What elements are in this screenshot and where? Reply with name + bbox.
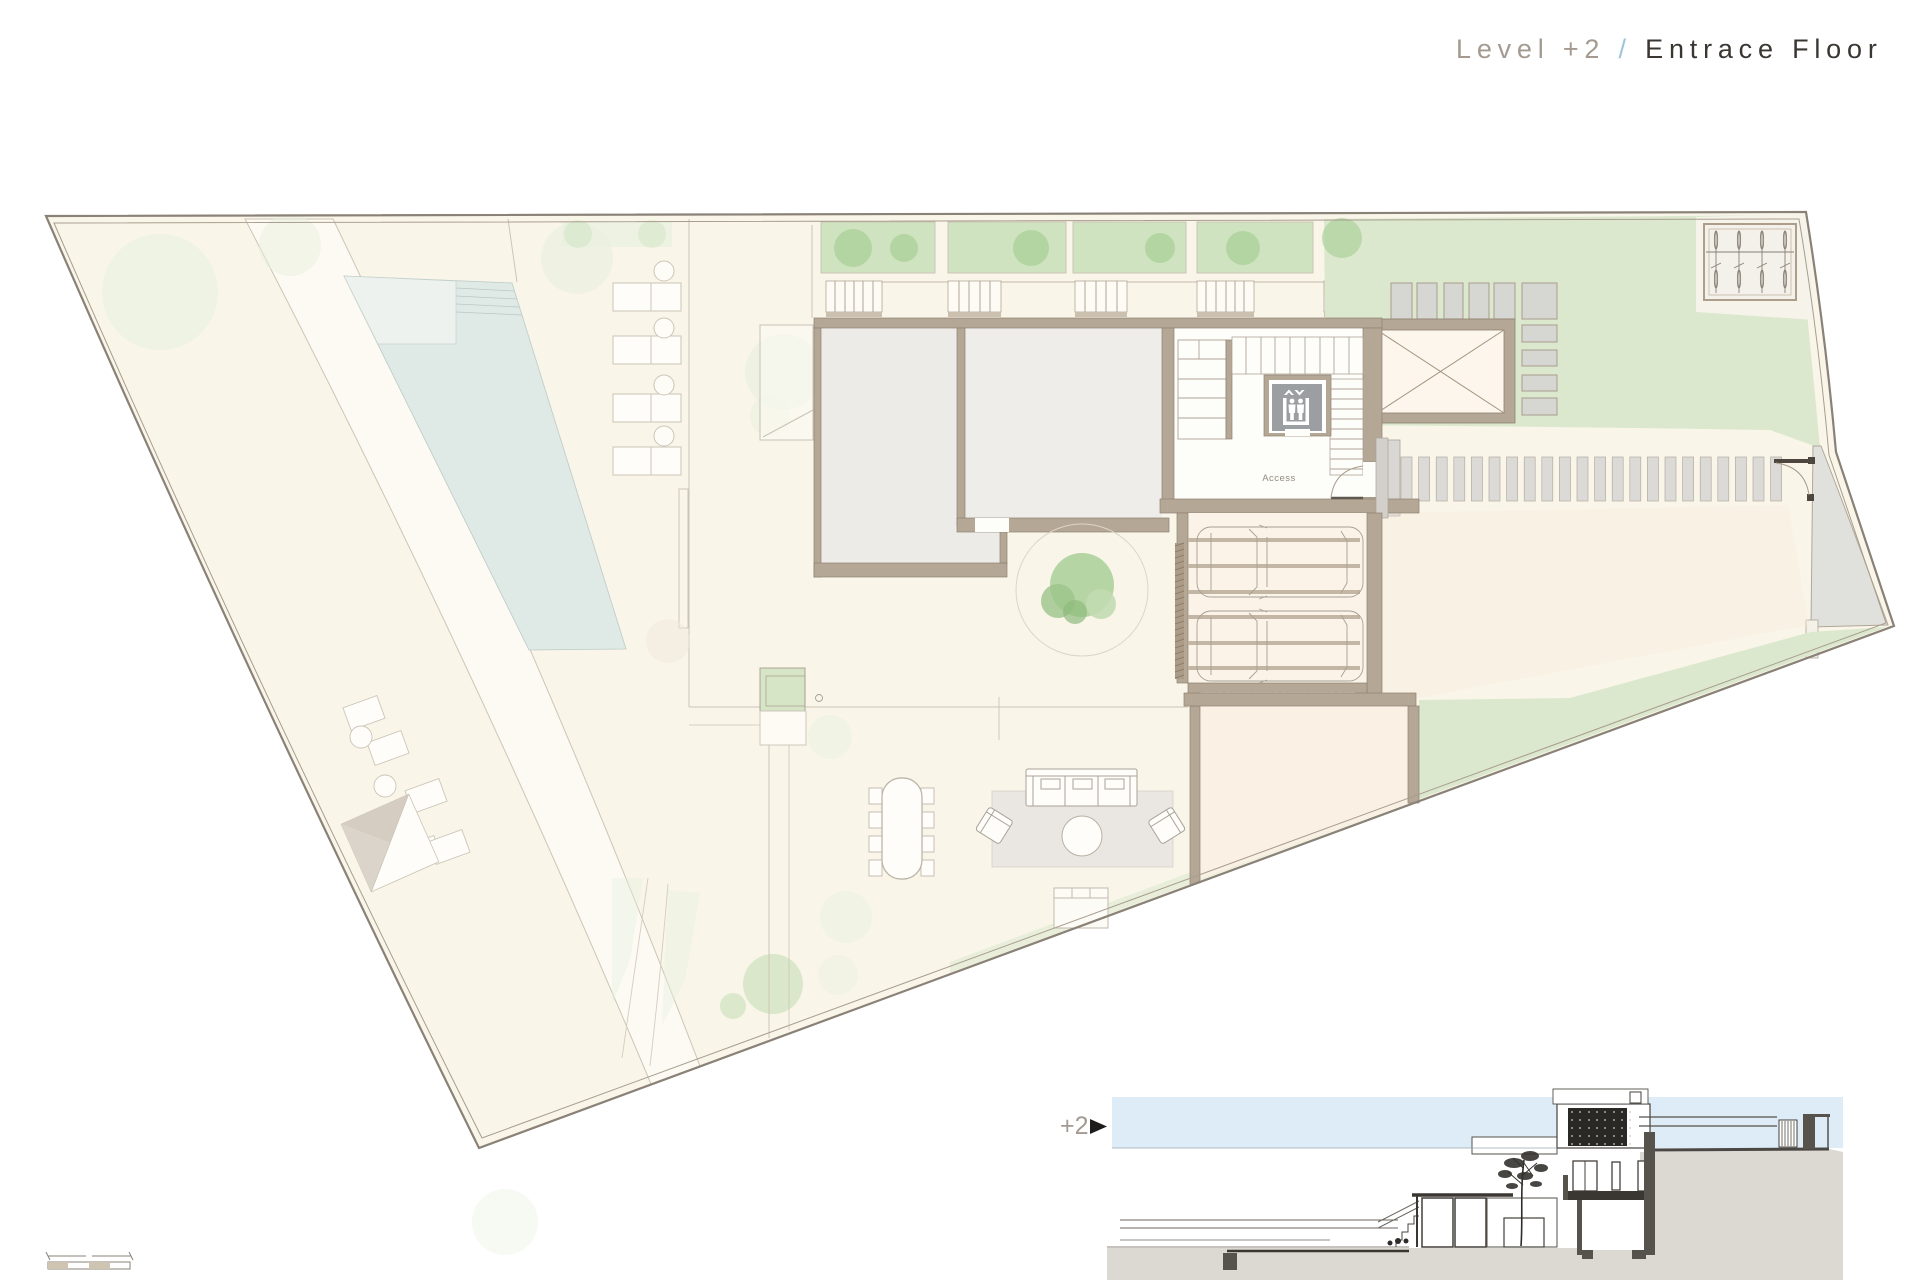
svg-text:+2: +2 bbox=[1060, 1112, 1089, 1140]
svg-text:Access: Access bbox=[1262, 473, 1296, 484]
